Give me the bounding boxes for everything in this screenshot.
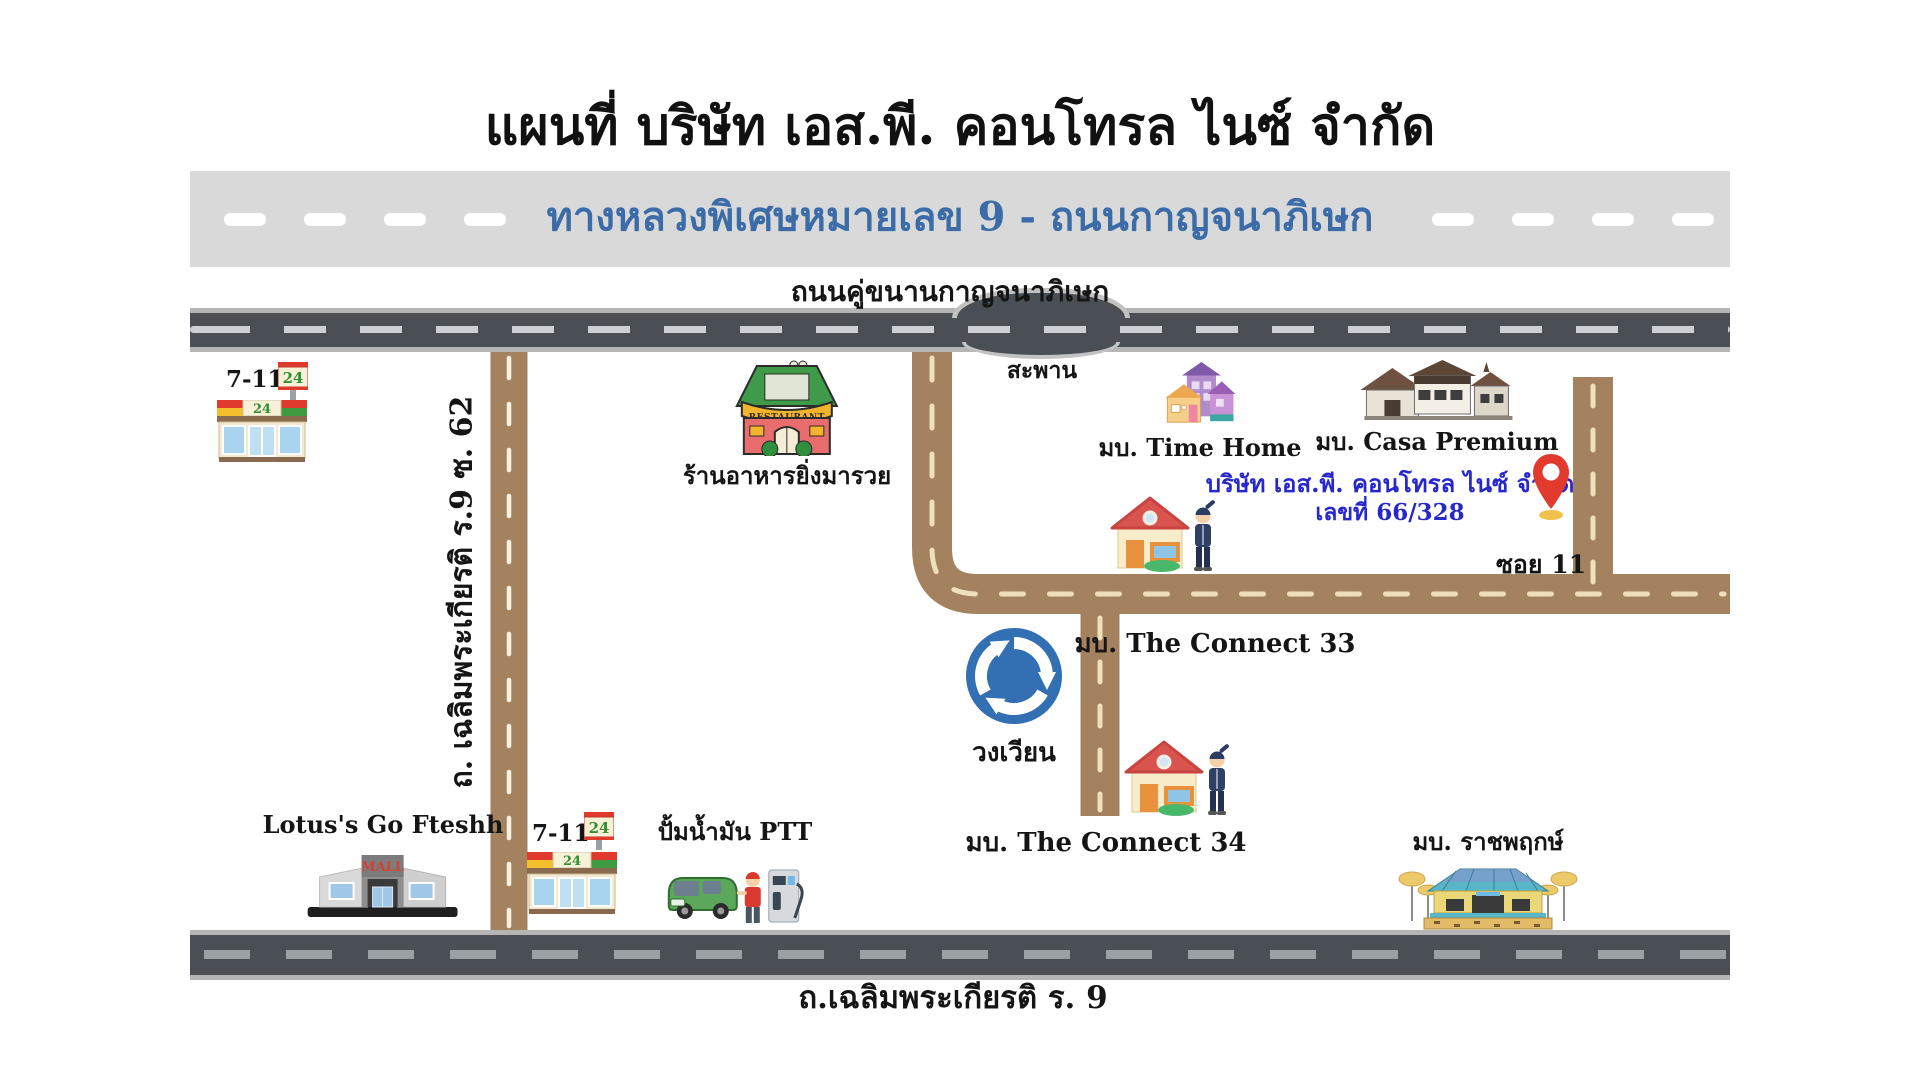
poi-ratchaphruek: มบ. ราชพฤกษ์ — [1398, 822, 1578, 931]
map-canvas: แผนที่ บริษัท เอส.พี. คอนโทรล ไนซ์ จำกัด… — [0, 0, 1920, 1080]
label-parallel-road: ถนนคู่ขนานกาญจนาภิเษก — [791, 270, 1109, 314]
house-guard-icon-1 — [1110, 494, 1222, 572]
location-pin-icon — [1531, 452, 1571, 522]
casa-premium-icon — [1358, 360, 1516, 422]
house-guard-icon-2 — [1124, 738, 1236, 816]
ptt-label: ปั้มน้ำมัน PTT — [658, 812, 812, 851]
poi-seven-eleven-bottom: 7-11 24 24 — [518, 808, 622, 916]
lotus-mall-icon: MALL — [308, 841, 458, 919]
label-bottom-road: ถ.เฉลิมพระเกียรติ ร. 9 — [798, 972, 1107, 1022]
poi-casa-premium: มบ. Casa Premium — [1315, 360, 1558, 461]
band-dash-right — [1432, 213, 1714, 226]
restaurant-label: ร้านอาหารยิ่งมารวย — [683, 456, 891, 495]
ratchaphruek-building-icon — [1398, 863, 1578, 931]
label-bridge: สะพาน — [1007, 353, 1077, 389]
seven-eleven-label: 7-11 — [226, 366, 284, 393]
poi-lotus: Lotus's Go Fteshh MALL — [263, 810, 504, 919]
roundabout-label: วงเวียน — [972, 732, 1056, 773]
label-connect-34: มบ. The Connect 34 — [965, 822, 1246, 863]
seven-eleven-store-icon: 24 — [526, 852, 618, 914]
poi-ptt: ปั้มน้ำมัน PTT — [658, 812, 812, 926]
sign-24-text: 24 — [283, 369, 304, 387]
seven-eleven-24-sign-icon: 24 — [584, 812, 614, 852]
poi-seven-eleven-top: 7-11 24 24 — [210, 362, 314, 464]
poi-roundabout: วงเวียน — [964, 626, 1064, 773]
awning-24-text: 24 — [253, 402, 271, 417]
highway-band: ทางหลวงพิเศษหมายเลข 9 - ถนนกาญจนาภิเษก — [190, 171, 1730, 267]
ratchaphruek-label: มบ. ราชพฤกษ์ — [1412, 822, 1563, 861]
mall-sign-text: MALL — [362, 860, 405, 875]
label-connect-33: มบ. The Connect 33 — [1074, 623, 1355, 664]
lotus-label: Lotus's Go Fteshh — [263, 810, 504, 839]
gas-station-icon — [665, 854, 805, 926]
roundabout-icon — [964, 626, 1064, 726]
company-name: บริษัท เอส.พี. คอนโทรล ไนซ์ จำกัด — [1206, 470, 1575, 499]
company-note: บริษัท เอส.พี. คอนโทรล ไนซ์ จำกัด เลขที่… — [1206, 470, 1575, 526]
restaurant-icon: RESTAURANT — [734, 358, 840, 456]
time-home-label: มบ. Time Home — [1098, 428, 1301, 467]
label-soi-11: ซอย 11 — [1496, 545, 1586, 585]
parallel-road-dashes — [190, 326, 1730, 333]
seven-eleven-label: 7-11 — [532, 820, 590, 847]
label-soi-62: ถ. เฉลิมพระเกียรติ ร.9 ซ. 62 — [439, 396, 486, 789]
seven-eleven-store-icon: 24 — [216, 400, 308, 462]
casa-premium-label: มบ. Casa Premium — [1315, 422, 1558, 461]
awning-24-text: 24 — [563, 854, 581, 869]
sign-24-text: 24 — [589, 819, 610, 837]
bottom-road-dashes — [190, 950, 1730, 959]
poi-time-home: มบ. Time Home — [1098, 360, 1301, 467]
poi-restaurant: RESTAURANT ร้านอาหารยิ่งมารวย — [683, 358, 891, 495]
time-home-icon — [1164, 360, 1236, 428]
seven-eleven-24-sign-icon: 24 — [278, 362, 308, 402]
company-address: เลขที่ 66/328 — [1206, 499, 1575, 527]
